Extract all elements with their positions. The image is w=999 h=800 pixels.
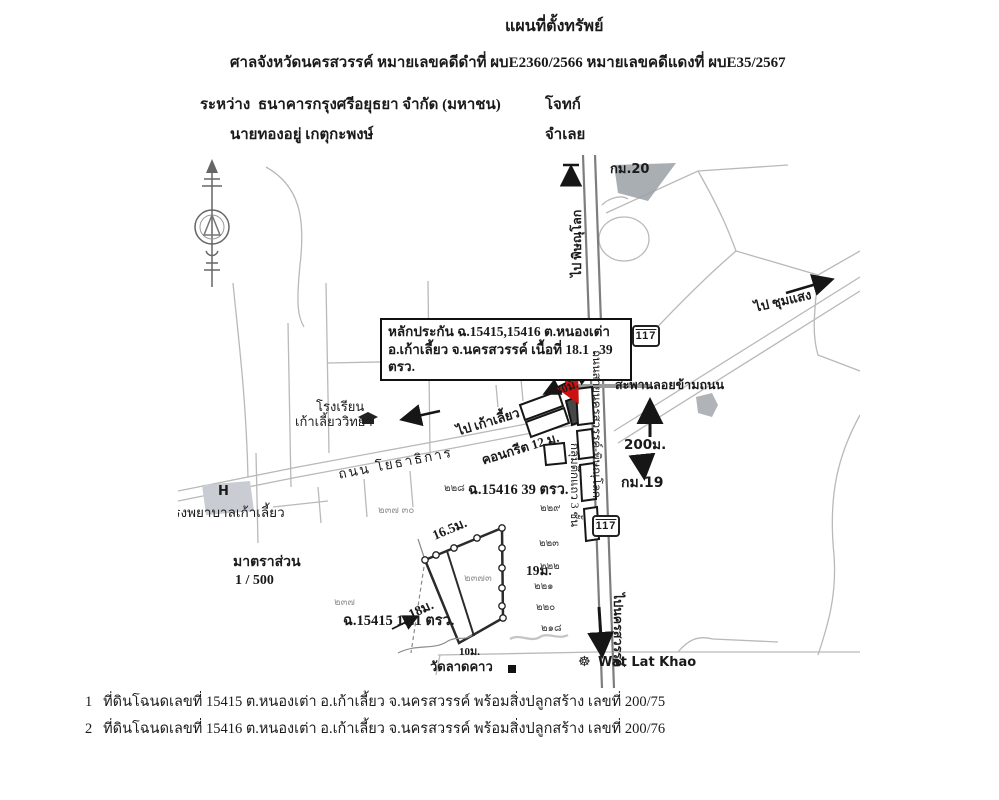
deed-item-number: 2 (85, 721, 92, 737)
to-phitsanulok-label: ไป พิษณุโลก (570, 210, 584, 277)
gray-area-blob (696, 393, 718, 417)
dist-200m-label: 200ม. (624, 438, 666, 454)
parcel-number: ๒๒๐ (536, 600, 555, 615)
parcel-number: ๒๓๗ (334, 595, 355, 610)
school-label-line2: เก้าเลี้ยววิทยา (295, 415, 373, 430)
document-page: แผนที่ตั้งทรัพย์ ศาลจังหวัดนครสวรรค์ หมา… (0, 0, 999, 800)
page-title: แผนที่ตั้งทรัพย์ (505, 18, 603, 36)
parcel-number: ๒๒๘ (444, 481, 465, 496)
wat-square-marker (508, 665, 516, 673)
wat-thai-label: วัดลาดคาว (430, 660, 493, 675)
parcel-number: ๒๓๗ ๓๐ (378, 503, 414, 518)
arrow-down-200m (642, 455, 644, 475)
defendant-role: จำเลย (545, 127, 585, 144)
scale-value: 1 / 500 (235, 573, 274, 589)
scale-label: มาตราส่วน (233, 555, 301, 571)
parcel-number: ๒๒๓ (539, 536, 559, 551)
shophouse-buildings (520, 387, 599, 541)
plaintiff-role: โจทก์ (545, 97, 581, 114)
plaintiff-name: ธนาคารกรุงศรีอยุธยา จำกัด (มหาชน) (258, 97, 501, 114)
deed-item-text: ที่ดินโฉนดเลขที่ 15416 ต.หนองเต่า อ.เก้า… (103, 721, 665, 737)
deed-item-1: 1 ที่ดินโฉนดเลขที่ 15415 ต.หนองเต่า อ.เก… (85, 690, 665, 713)
property-map: หลักประกัน ฉ.15415,15416 ต.หนองเต่า อ.เก… (178, 155, 860, 688)
annotation-line1: หลักประกัน ฉ.15415,15416 ต.หนองเต่า (388, 323, 624, 341)
route-117-shield-top: 117 (632, 325, 660, 347)
hospital-label: โรงพยาบาลเก้าเลี้ยว (178, 505, 285, 521)
deed-item-2: 2 ที่ดินโฉนดเลขที่ 15416 ต.หนองเต่า อ.เก… (85, 717, 665, 740)
deed-15415-label: ฉ.15415 18.1 ตรว. (343, 613, 454, 630)
km20-label: กม.20 (610, 163, 649, 178)
highway-name-label: ถนนสายนครสวรรค์-พิษณุโลก (589, 350, 602, 498)
parcel-number: ๒๒๑ (534, 579, 554, 594)
parcel-number: ๒๒๙ (540, 501, 561, 516)
deed-item-number: 1 (85, 694, 92, 710)
wat-temple-icon: ☸ (578, 654, 591, 670)
map-drawing (178, 155, 860, 688)
between-label: ระหว่าง (200, 97, 250, 114)
route-117-shield-bottom: 117 (592, 515, 620, 537)
hospital-h-label: H (218, 485, 229, 500)
shophouses-label: กลุ่มตึกแถว 3 ชั้น (567, 443, 580, 527)
dim-10m-label: 10ม. (459, 646, 480, 659)
north-emblem-icon (195, 159, 229, 287)
defendant-name: นายทองอยู่ เกตุกะพงษ์ (230, 127, 373, 144)
km19-label: กม.19 (621, 475, 664, 491)
parcel-number: ๒๒๒ (540, 559, 560, 574)
school-label-line1: โรงเรียน (316, 400, 364, 415)
court-case-line: ศาลจังหวัดนครสวรรค์ หมายเลขคดีดำที่ ผบE2… (230, 55, 786, 72)
deed-item-text: ที่ดินโฉนดเลขที่ 15415 ต.หนองเต่า อ.เก้า… (103, 694, 665, 710)
overpass-label: สะพานลอยข้ามถนน (615, 378, 724, 392)
parcel-number: ๒๑๘ (541, 621, 562, 636)
kaoliao-arrow (404, 411, 440, 419)
parcel-number: ๒๓๗๓ (464, 571, 492, 586)
deed-15416-label: ฉ.15416 39 ตรว. (468, 482, 568, 499)
to-nakhonsawan-label: ไปนครสวรรค์ (611, 593, 625, 667)
